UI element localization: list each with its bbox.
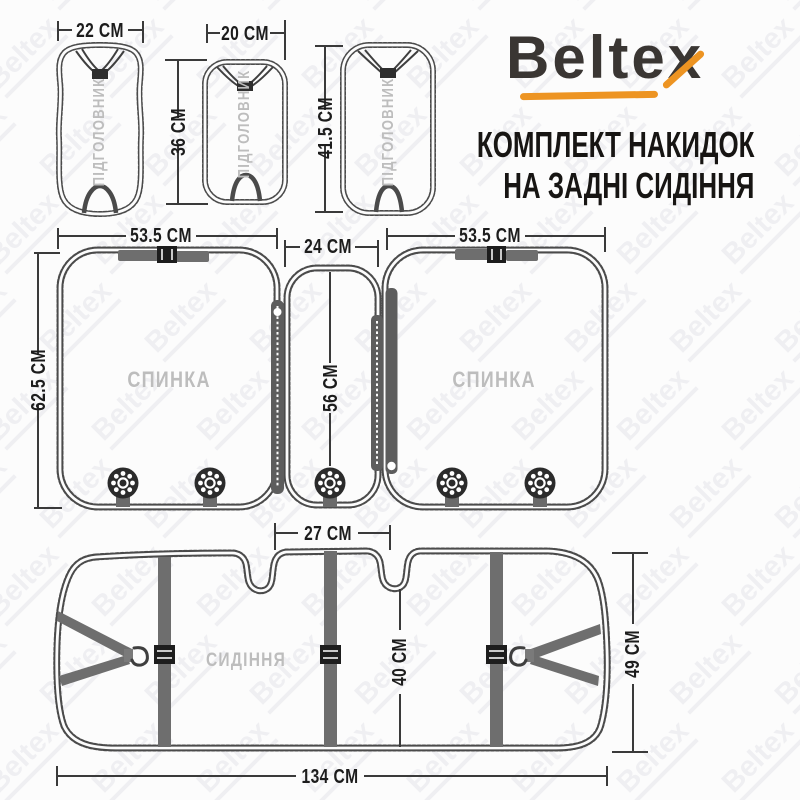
metal-hook [511, 648, 526, 666]
metal-hook [132, 648, 147, 666]
dim-headrest2-width-label: 20 CM [221, 22, 269, 44]
backrest-left-label: СПИНКА [127, 368, 210, 392]
dim-seat-side-height-label: 49 CM [621, 630, 643, 678]
backrest-left-strap-buckle [157, 246, 177, 263]
zipper-pull [387, 462, 395, 470]
dim-backrest-middle-height-label: 56 CM [319, 364, 341, 412]
backrest-right-strap-buckle [487, 246, 506, 263]
dim-headrest2-height-label: 36 CM [167, 108, 189, 156]
dim-backrest-middle-width-label: 24 CM [304, 235, 352, 257]
title-line-1: КОМПЛЕКТ НАКИДОК [476, 124, 754, 165]
snap-clip [437, 468, 468, 508]
headrest-1-label: ПІДГОЛОВНИК [91, 78, 108, 187]
brand-logo: Beltex [506, 28, 746, 88]
snap-clip [108, 468, 139, 508]
seat-cover-diagram: 22 CM 20 CM 36 CM 41.5 CM 53.5 CM 24 CM … [0, 0, 800, 800]
seat-label: СИДІННЯ [206, 649, 286, 671]
dim-backrest-left-height-label: 62.5 CM [27, 349, 49, 411]
title-line-2: НА ЗАДНІ СИДІННЯ [476, 165, 754, 206]
zipper-pull [274, 308, 282, 316]
dim-seat-depth-label: 40 CM [388, 638, 410, 686]
dim-backrest-right-width-label: 53.5 CM [459, 224, 521, 246]
seat-hook-strap-left [57, 611, 147, 686]
seat-hook-strap-right [511, 624, 601, 686]
snap-clip [525, 468, 556, 508]
headrest-3-clip [380, 68, 396, 78]
backrest-right-strap [455, 249, 489, 260]
dim-headrest1-width-label: 22 CM [76, 19, 124, 41]
snap-clip [315, 468, 346, 508]
product-diagram-page: BeltexBeltexBeltexBeltexBeltexBeltexBelt… [0, 0, 800, 800]
snap-clip [195, 468, 226, 508]
dim-seat-notch-gap-label: 27 CM [304, 522, 352, 544]
headrest-1-clip [92, 69, 108, 79]
headrest-1-bottom-notch [84, 186, 116, 213]
seat-panel [57, 551, 607, 748]
backrest-left-strap [118, 250, 158, 261]
dim-headrest3-height-label: 41.5 CM [314, 97, 336, 159]
headrest-2-label: ПІДГОЛОВНИК [236, 70, 253, 179]
brand-name: Beltex [506, 28, 746, 88]
dim-backrest-left-width-label: 53.5 CM [130, 224, 192, 246]
page-title: КОМПЛЕКТ НАКИДОК НА ЗАДНІ СИДІННЯ [369, 124, 754, 206]
dim-seat-width-label: 134 CM [302, 765, 359, 787]
backrest-right-label: СПИНКА [452, 368, 535, 392]
zipper-left [271, 300, 284, 494]
